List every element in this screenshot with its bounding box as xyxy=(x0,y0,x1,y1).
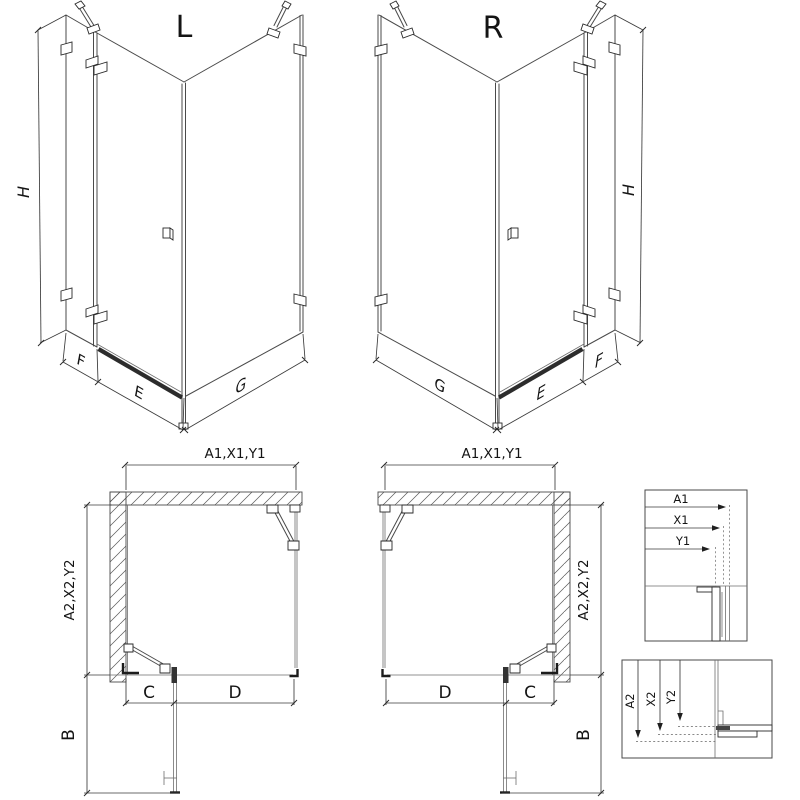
iso-left-glass-panels xyxy=(66,15,303,429)
wall-left xyxy=(110,492,126,682)
dim-label-side: A2,X2,Y2 xyxy=(62,559,78,620)
detail-label-x2: X2 xyxy=(644,691,658,706)
dim-label-c: C xyxy=(143,683,155,703)
wall-top xyxy=(110,492,302,505)
wall-right xyxy=(554,492,570,682)
dim-label-e: E xyxy=(135,380,145,405)
end-bracket xyxy=(383,669,391,676)
plan-left-hardware xyxy=(123,505,300,683)
iso-right-dimensions: H F E G xyxy=(373,15,646,433)
iso-left-dimensions: H F E G xyxy=(14,15,308,433)
dim-label-d: D xyxy=(228,683,241,703)
variant-label-L: L xyxy=(176,10,193,45)
iso-right-hardware xyxy=(375,1,620,324)
detail-label-a1: A1 xyxy=(673,492,688,506)
plan-left-glass xyxy=(110,505,297,793)
support-brace-right xyxy=(581,1,606,34)
plan-view-right: A1,X1,Y1 A2,X2,Y2 B D C xyxy=(378,446,604,796)
detail-box-bottom: A2 X2 Y2 xyxy=(622,660,772,758)
dim-label-top: A1,X1,Y1 xyxy=(204,446,265,462)
dim-label-e: E xyxy=(537,380,547,405)
dim-label-side: A2,X2,Y2 xyxy=(576,559,592,620)
support-brace-right xyxy=(267,1,291,38)
dim-label-b: B xyxy=(574,729,594,741)
dim-label-h: H xyxy=(14,186,33,198)
detail-label-y2: Y2 xyxy=(664,690,678,705)
door-pivot xyxy=(503,667,509,683)
iso-right-glass-panels xyxy=(378,15,615,429)
detail-label-y1: Y1 xyxy=(675,534,690,548)
dim-label-f: F xyxy=(595,348,604,372)
support-brace-left xyxy=(75,1,100,34)
shower-enclosure-diagram: L xyxy=(0,0,800,800)
dim-label-f: F xyxy=(77,349,86,373)
support-brace-left xyxy=(390,1,414,38)
plan-view-left: A1,X1,Y1 A2,X2,Y2 B C D xyxy=(59,446,302,796)
detail-label-x1: X1 xyxy=(673,513,688,527)
variant-label-R: R xyxy=(483,11,504,46)
wall-top xyxy=(378,492,570,505)
dim-label-b: B xyxy=(59,729,79,741)
plan-right-glass xyxy=(383,505,570,793)
dim-label-c: C xyxy=(524,683,536,703)
door-knob xyxy=(163,228,170,238)
detail-label-a2: A2 xyxy=(623,693,637,708)
door-pivot xyxy=(172,667,178,683)
technical-drawing-page: L xyxy=(0,0,800,800)
plan-right-hardware xyxy=(380,505,557,683)
iso-view-right: R xyxy=(373,1,646,433)
detail-box-top: A1 X1 Y1 xyxy=(645,490,747,641)
iso-left-hardware xyxy=(61,1,306,324)
dim-label-g: G xyxy=(435,373,446,398)
end-bracket xyxy=(290,669,298,676)
iso-view-left: L xyxy=(14,1,308,433)
door-knob xyxy=(511,228,518,238)
dim-label-top: A1,X1,Y1 xyxy=(461,446,522,462)
dim-label-d: D xyxy=(438,683,451,703)
dim-label-g: G xyxy=(236,373,247,398)
dim-label-h: H xyxy=(619,184,638,196)
